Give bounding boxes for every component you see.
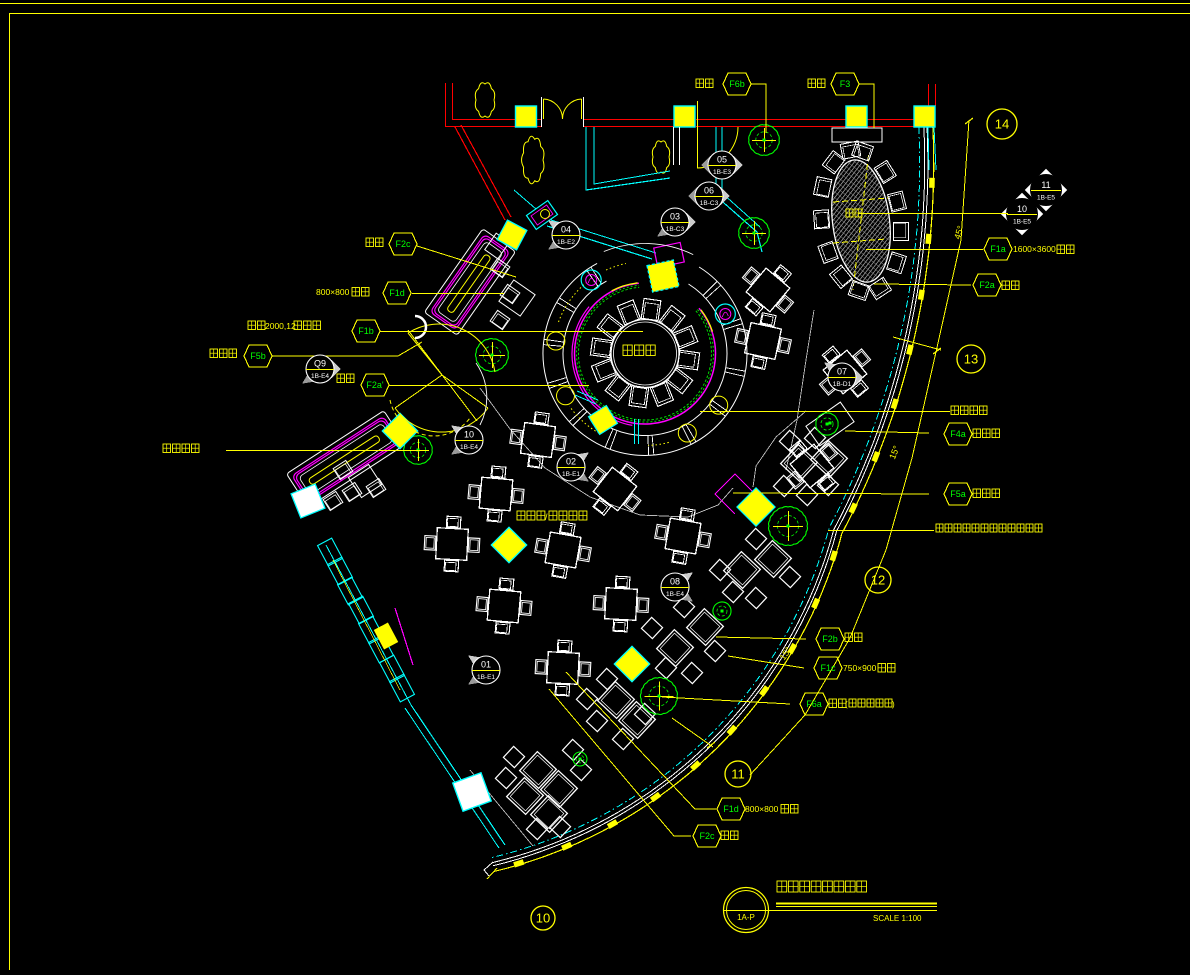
svg-text:1B-E1: 1B-E1 — [477, 674, 495, 681]
svg-text:): ) — [892, 700, 895, 709]
svg-text:1B-E5: 1B-E5 — [1037, 195, 1055, 202]
svg-text:14: 14 — [995, 117, 1009, 132]
svg-text:1B-E1: 1B-E1 — [562, 471, 580, 478]
svg-text:01: 01 — [481, 660, 491, 670]
svg-text:11: 11 — [1041, 180, 1050, 190]
svg-text:06: 06 — [704, 186, 714, 196]
svg-text:F5b: F5b — [250, 351, 266, 361]
svg-text:05: 05 — [717, 155, 727, 165]
svg-text:1B-E3: 1B-E3 — [713, 169, 731, 176]
svg-text:04: 04 — [561, 225, 571, 235]
svg-text:11: 11 — [731, 767, 745, 782]
svg-text:1B-C3: 1B-C3 — [700, 200, 719, 207]
svg-text:F3: F3 — [840, 79, 851, 89]
svg-text:13: 13 — [964, 352, 978, 367]
svg-text:10: 10 — [1017, 204, 1027, 214]
svg-text:03: 03 — [670, 212, 680, 222]
svg-text:08: 08 — [670, 577, 680, 587]
svg-text:F2a': F2a' — [366, 380, 384, 390]
svg-text:F1b: F1b — [358, 326, 374, 336]
svg-text:1B-C3: 1B-C3 — [666, 226, 685, 233]
svg-text:800×800: 800×800 — [316, 287, 350, 297]
svg-text:750×900: 750×900 — [843, 663, 877, 673]
svg-text:(: ( — [845, 700, 848, 709]
svg-text:F2a: F2a — [979, 280, 995, 290]
svg-text:F4a: F4a — [950, 429, 966, 439]
svg-text:07: 07 — [837, 367, 847, 377]
svg-text:F2c: F2c — [395, 239, 411, 249]
svg-text:F2c: F2c — [699, 831, 715, 841]
svg-text:F5a: F5a — [950, 489, 966, 499]
svg-text:1B-E4: 1B-E4 — [460, 444, 478, 451]
svg-text:1B-E5: 1B-E5 — [1013, 219, 1031, 226]
svg-text:800×800: 800×800 — [745, 804, 779, 814]
svg-text:10: 10 — [464, 430, 474, 440]
svg-text:F1d: F1d — [723, 804, 739, 814]
svg-text:1A-P: 1A-P — [737, 913, 755, 922]
svg-text:1B-D1: 1B-D1 — [833, 381, 852, 388]
svg-text:SCALE 1:100: SCALE 1:100 — [873, 914, 922, 923]
svg-text:F2b: F2b — [822, 634, 838, 644]
svg-text:F6a: F6a — [806, 699, 822, 709]
svg-text:F1d: F1d — [389, 288, 405, 298]
svg-text:1B-E4: 1B-E4 — [311, 373, 329, 380]
svg-text:F1a: F1a — [990, 244, 1006, 254]
svg-text:1600×3600: 1600×3600 — [1013, 244, 1056, 254]
svg-text:10: 10 — [536, 911, 550, 926]
svg-text:Q9: Q9 — [314, 359, 326, 369]
svg-text:F6b: F6b — [729, 79, 745, 89]
svg-text:1B-E2: 1B-E2 — [557, 239, 575, 246]
svg-text:02: 02 — [566, 457, 576, 467]
svg-text:F1c: F1c — [820, 663, 836, 673]
svg-text:2000,12: 2000,12 — [265, 321, 296, 331]
svg-text:1B-E4: 1B-E4 — [666, 591, 684, 598]
svg-text:12: 12 — [871, 573, 885, 588]
